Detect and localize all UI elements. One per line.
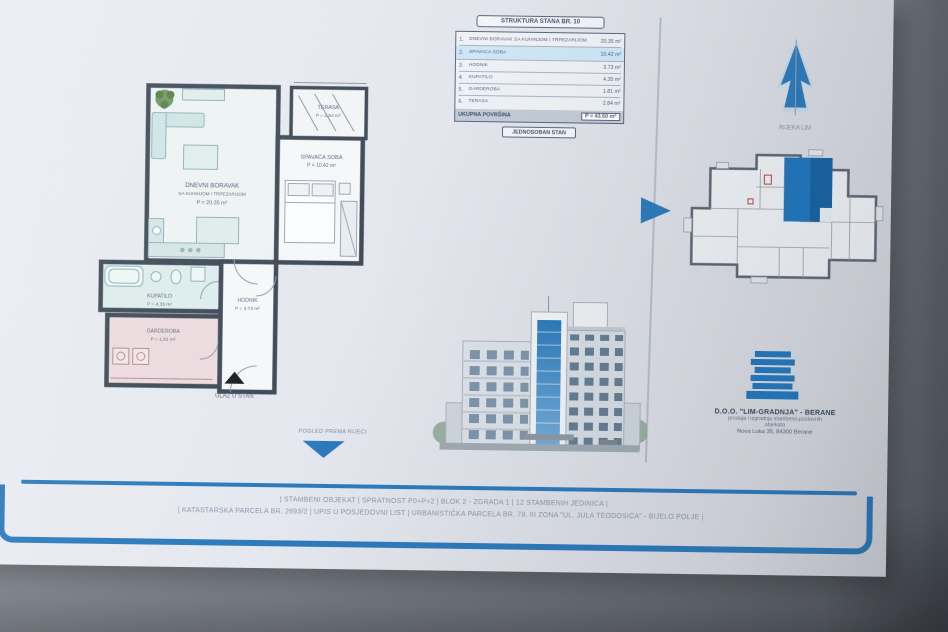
living-area-label: P = 20.35 m² bbox=[196, 200, 227, 206]
nightstand-icon bbox=[339, 183, 350, 194]
terrace-label: TERASA bbox=[317, 105, 339, 111]
wardrobe-label: GARDEROBA bbox=[147, 328, 181, 334]
room-area-table: STRUKTURA STANA BR. 10 1. DNEVNI BORAVAK… bbox=[454, 15, 626, 139]
shelf-icon bbox=[182, 89, 224, 101]
striped-building-logo-icon bbox=[746, 351, 799, 400]
toilet-icon bbox=[171, 270, 181, 284]
locator-arrow-icon bbox=[641, 197, 671, 223]
brochure-sheet: STAMBENI OBJEKAT - BERANE bbox=[0, 0, 894, 577]
orientation-arrow: RIJEKA LIM bbox=[760, 39, 831, 136]
table-header: STRUKTURA STANA BR. 10 bbox=[476, 15, 604, 29]
coffee-table-icon bbox=[183, 145, 217, 169]
room-name: TERASA bbox=[468, 99, 602, 106]
wardrobe-area-label: P = 1.81 m² bbox=[151, 337, 176, 343]
room-name: GARDEROBA bbox=[469, 87, 603, 94]
company-address: Nova Luka 35, 84300 Berane bbox=[680, 428, 870, 437]
side-block bbox=[624, 403, 641, 449]
living-label: DNEVNI BORAVAK bbox=[185, 182, 240, 190]
bedroom-label: SPAVAĆA SOBA bbox=[301, 154, 343, 162]
glass-facade bbox=[536, 320, 562, 446]
row-number: 5. bbox=[459, 86, 469, 92]
room-area: 4.35 m² bbox=[603, 76, 621, 82]
room-name: DNEVNI BORAVAK SA KUHINJOM I TRPEZARIJOM bbox=[469, 37, 601, 44]
vertical-divider bbox=[645, 18, 662, 463]
entrance-label: ULAZ U STAN bbox=[215, 393, 254, 400]
sink-icon bbox=[153, 227, 161, 235]
view-direction-label: POGLED PREMA RIJECI bbox=[258, 428, 408, 436]
apartment-floorplan: DNEVNI BORAVAK SA KUHINJOM I TRPEZARIJOM… bbox=[82, 48, 392, 422]
terrace-area-label: P = 2.84 m² bbox=[316, 113, 341, 119]
building-key-plan bbox=[679, 146, 886, 289]
view-direction-arrow-icon bbox=[302, 441, 344, 459]
row-number: 1. bbox=[459, 36, 469, 42]
dining-table-icon bbox=[196, 217, 238, 244]
company-block: D.O.O. "LIM-GRADNJA" - BERANE prodaja i … bbox=[680, 408, 870, 437]
bedroom-area-label: P = 10.42 m² bbox=[307, 163, 336, 169]
room-area: 1.81 m² bbox=[603, 88, 621, 94]
room-name: HODNIK bbox=[469, 63, 603, 70]
row-number: 6. bbox=[458, 98, 468, 104]
terrace bbox=[291, 87, 367, 138]
total-label: UKUPNA POVRŠINA bbox=[458, 112, 581, 120]
right-wing-windows bbox=[568, 334, 624, 447]
hall-area-label: P = 3.73 m² bbox=[235, 306, 260, 312]
bath-area-label: P = 4.35 m² bbox=[147, 301, 172, 307]
room-name: SPAVAĆA SOBA bbox=[469, 50, 601, 57]
company-logo bbox=[744, 349, 801, 404]
table-row: 6. TERASA 2.84 m² bbox=[458, 96, 620, 109]
side-block bbox=[446, 403, 463, 445]
building-render bbox=[431, 282, 648, 461]
sheet-frame-border bbox=[0, 484, 873, 554]
living-label-2: SA KUHINJOM I TRPEZARIJOM bbox=[178, 191, 246, 197]
unit-notch bbox=[820, 208, 832, 222]
row-number: 4. bbox=[459, 74, 469, 80]
row-number: 3. bbox=[459, 62, 469, 68]
hallway bbox=[219, 262, 276, 393]
room-area: 3.73 m² bbox=[603, 64, 621, 70]
photograph-of-floorplan-sheet: STAMBENI OBJEKAT - BERANE bbox=[0, 0, 948, 632]
bath-label: KUPATILO bbox=[147, 293, 172, 299]
row-number: 2. bbox=[459, 49, 469, 55]
table-body: 1. DNEVNI BORAVAK SA KUHINJOM I TRPEZARI… bbox=[454, 31, 625, 124]
room-area: 10.42 m² bbox=[601, 51, 622, 57]
room-name: KUPATILO bbox=[469, 75, 603, 82]
washing-machine-icon bbox=[191, 267, 205, 281]
entry-canopy bbox=[524, 434, 574, 441]
hall-label: HODNIK bbox=[237, 298, 258, 304]
apartment-type-box: JEDNOSOBAN STAN bbox=[502, 126, 576, 138]
room-area: 2.84 m² bbox=[603, 100, 621, 106]
table-total-row: UKUPNA POVRŠINA P = 43.50 m² bbox=[455, 109, 623, 123]
total-value: P = 43.50 m² bbox=[581, 113, 620, 122]
washbasin-icon bbox=[151, 272, 161, 282]
room-area: 20.35 m² bbox=[601, 38, 622, 44]
orientation-label: RIJEKA LIM bbox=[779, 125, 811, 131]
